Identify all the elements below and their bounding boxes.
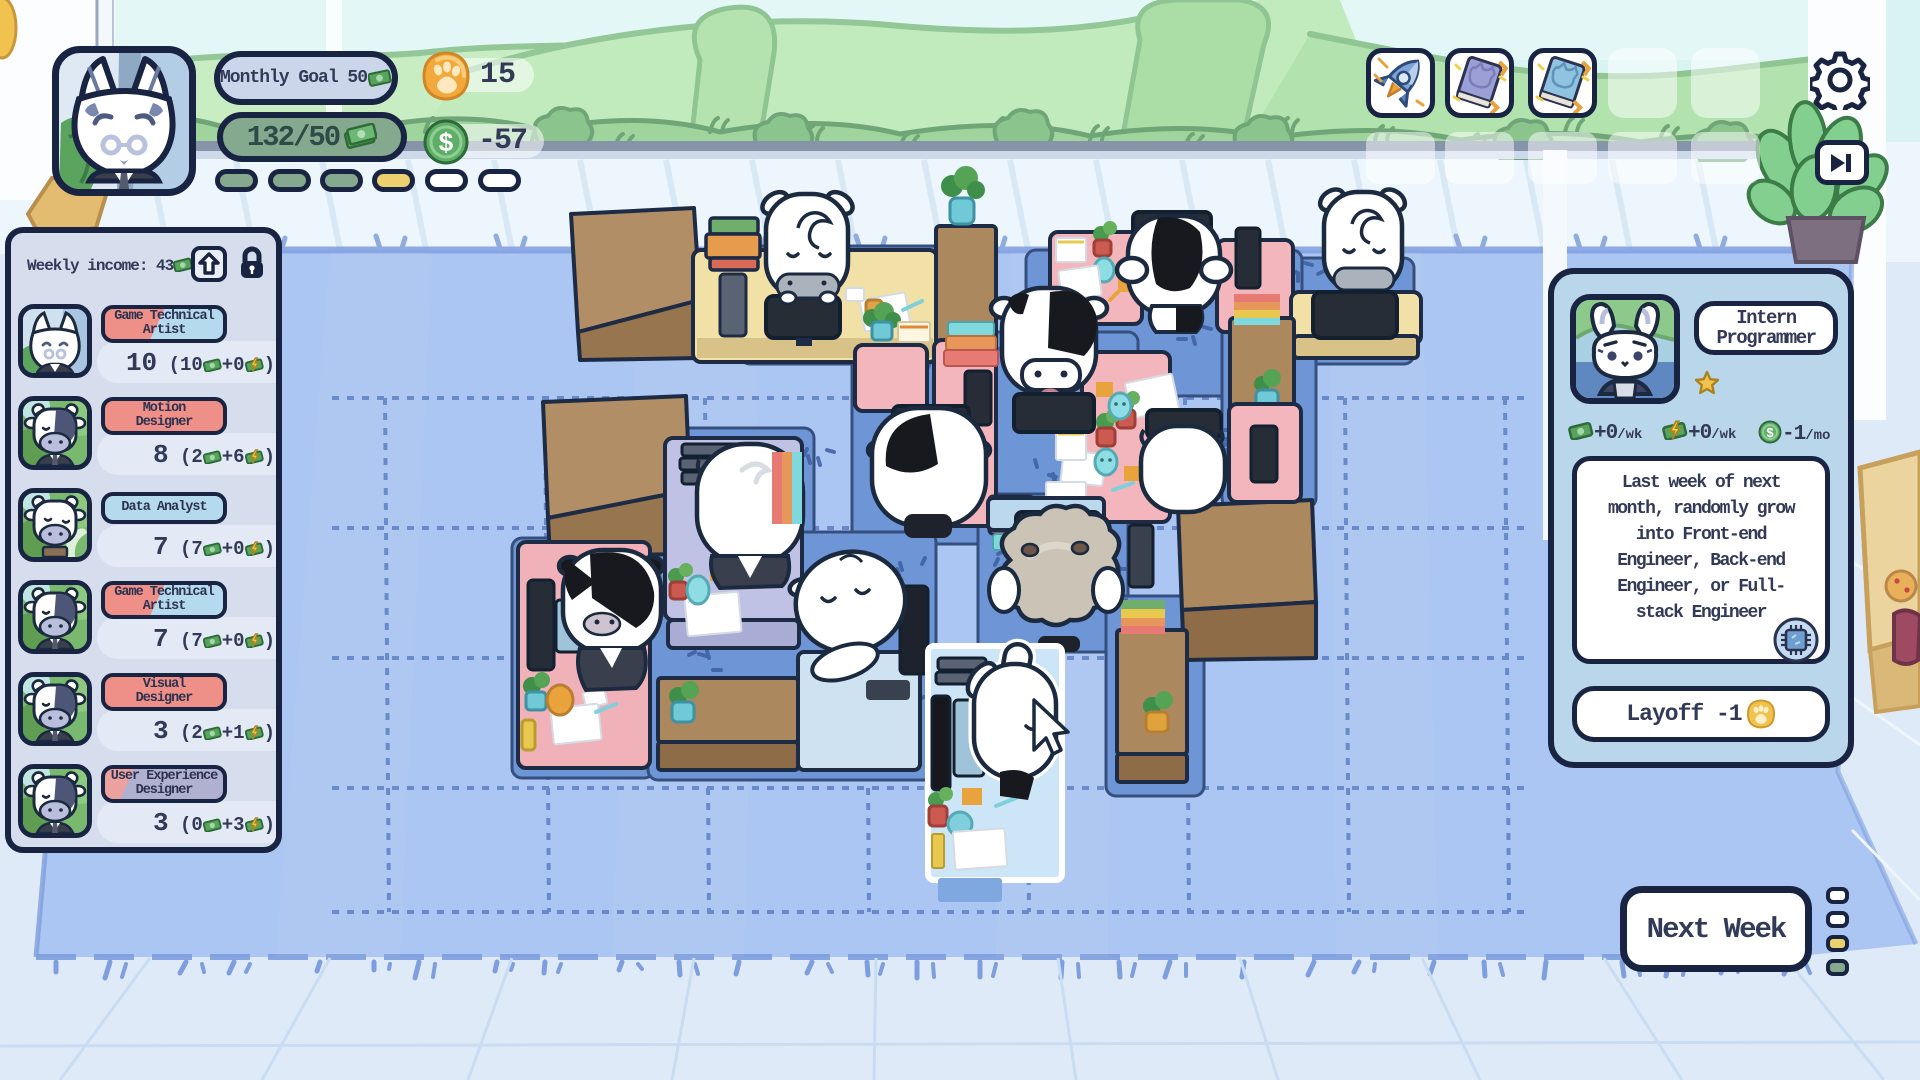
svg-text:$: $: [1766, 425, 1774, 440]
svg-text:$: $: [439, 127, 454, 157]
